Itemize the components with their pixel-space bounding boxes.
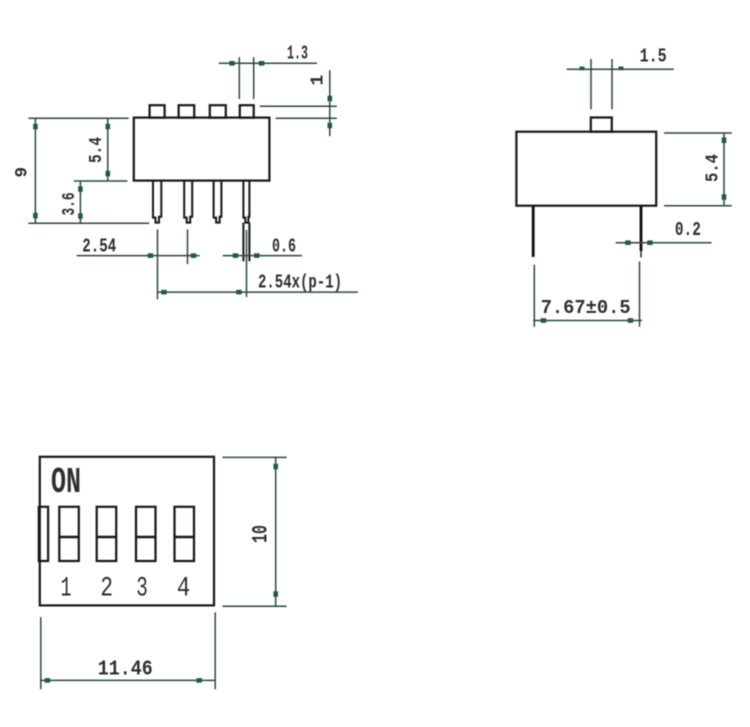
svg-text:1: 1 <box>61 574 72 605</box>
svg-text:10: 10 <box>249 525 274 543</box>
svg-text:5.4: 5.4 <box>703 154 724 182</box>
svg-text:5.4: 5.4 <box>86 137 107 163</box>
svg-text:2: 2 <box>100 574 113 605</box>
svg-text:4: 4 <box>177 574 191 605</box>
svg-text:2.54: 2.54 <box>82 236 116 258</box>
svg-text:1.3: 1.3 <box>287 43 308 65</box>
svg-text:11.46: 11.46 <box>98 659 153 682</box>
svg-text:0.6: 0.6 <box>272 236 296 258</box>
svg-text:9: 9 <box>13 167 33 178</box>
svg-text:1: 1 <box>309 75 329 86</box>
svg-text:0.2: 0.2 <box>675 219 701 241</box>
svg-text:3.6: 3.6 <box>59 193 80 216</box>
svg-text:ON: ON <box>51 462 81 503</box>
svg-text:3: 3 <box>136 574 148 605</box>
svg-text:2.54x(p-1): 2.54x(p-1) <box>258 272 342 294</box>
svg-text:7.67±0.5: 7.67±0.5 <box>541 297 631 319</box>
svg-text:1.5: 1.5 <box>640 46 667 68</box>
